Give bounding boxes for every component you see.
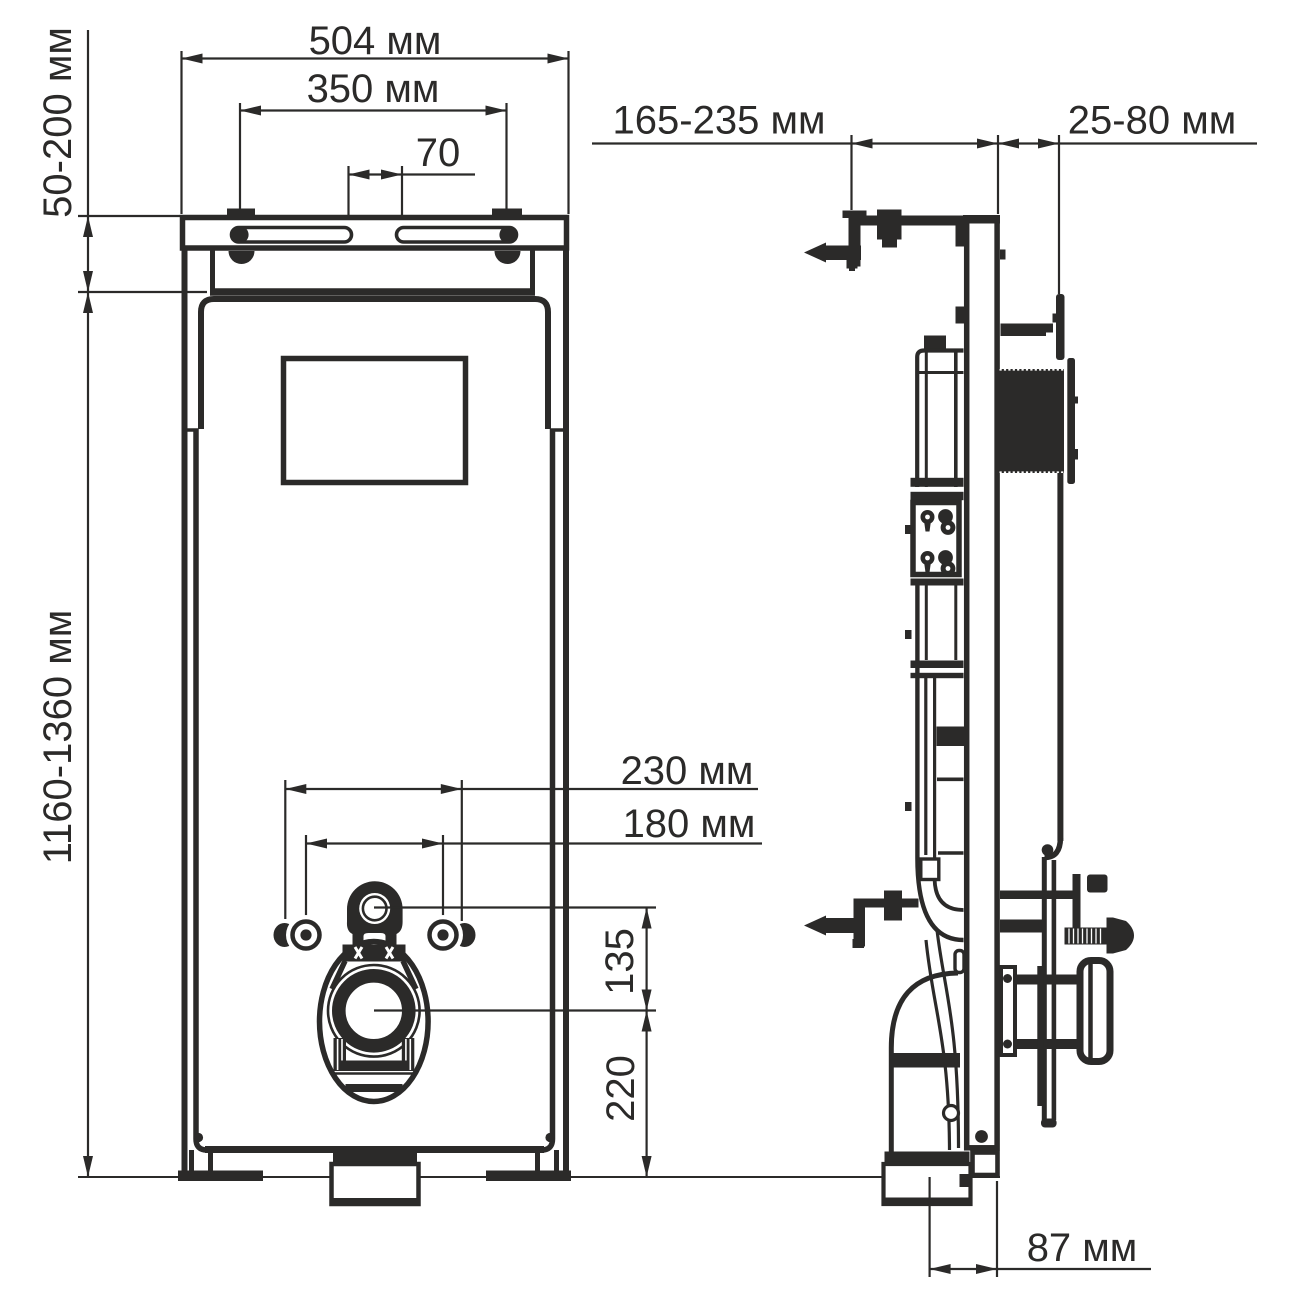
svg-text:135: 135 <box>598 928 642 995</box>
svg-text:220: 220 <box>599 1055 643 1122</box>
svg-text:350 мм: 350 мм <box>307 67 440 111</box>
svg-text:70: 70 <box>416 131 461 175</box>
svg-text:165-235 мм: 165-235 мм <box>613 99 826 143</box>
svg-text:50-200 мм: 50-200 мм <box>36 27 80 218</box>
svg-text:25-80 мм: 25-80 мм <box>1068 99 1236 143</box>
svg-text:87 мм: 87 мм <box>1027 1226 1138 1270</box>
svg-text:180 мм: 180 мм <box>623 802 756 846</box>
svg-text:230 мм: 230 мм <box>621 749 754 793</box>
svg-text:1160-1360 мм: 1160-1360 мм <box>36 610 80 864</box>
svg-text:504 мм: 504 мм <box>309 19 442 63</box>
